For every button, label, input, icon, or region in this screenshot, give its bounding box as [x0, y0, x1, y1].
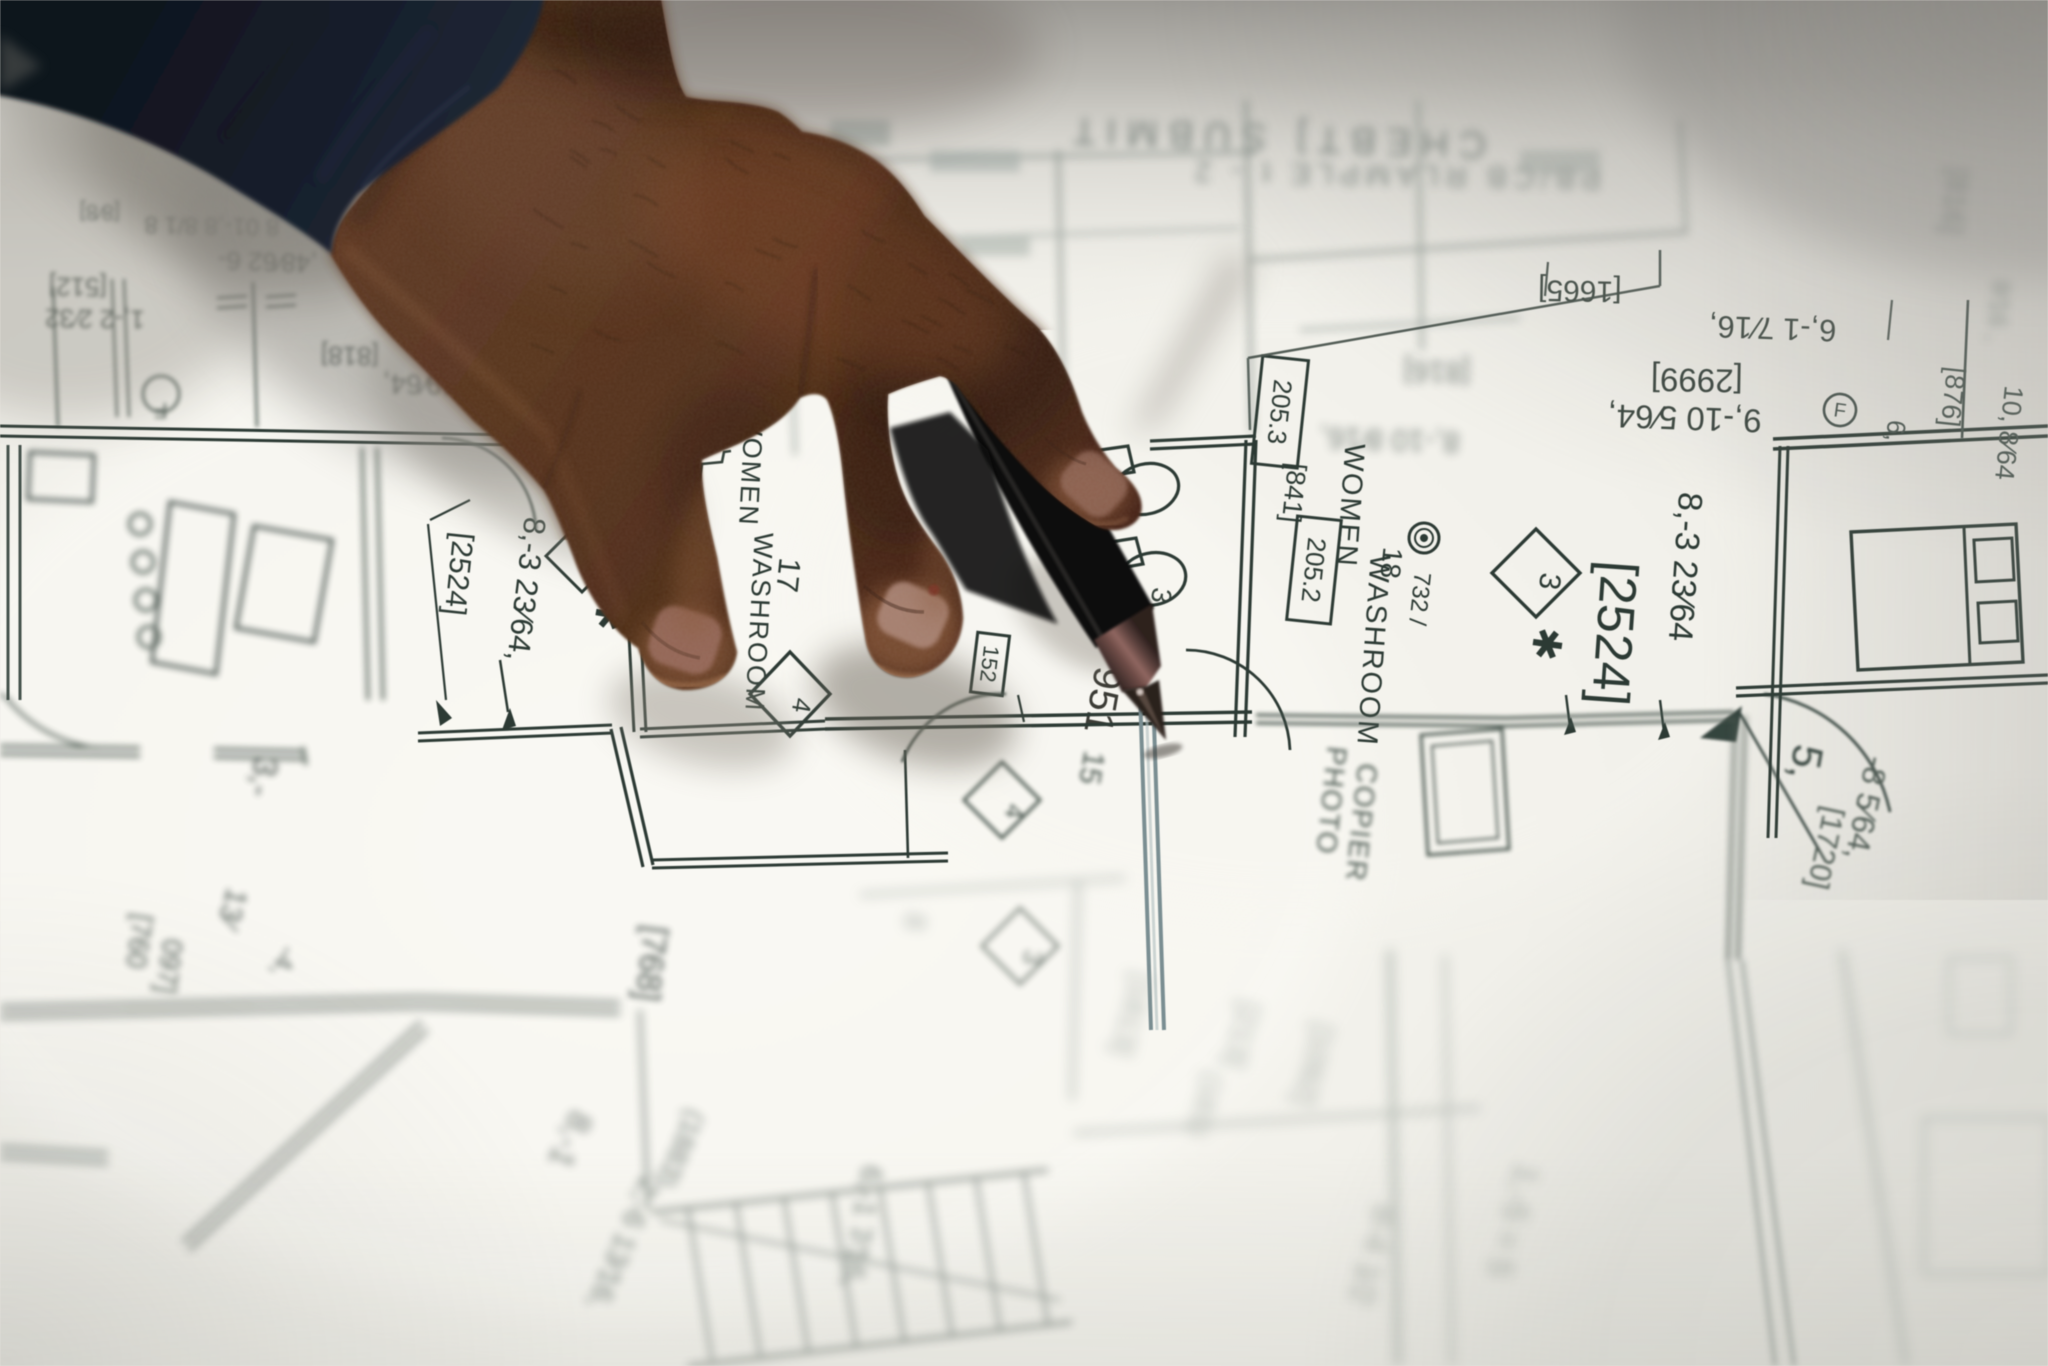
svg-text:✱: ✱: [1522, 624, 1570, 663]
svg-text:15: 15: [1072, 748, 1110, 787]
svg-text:[2524]: [2524]: [1580, 559, 1648, 707]
svg-text:3,-: 3,-: [241, 754, 285, 800]
svg-text:732 /: 732 /: [1403, 571, 1435, 627]
